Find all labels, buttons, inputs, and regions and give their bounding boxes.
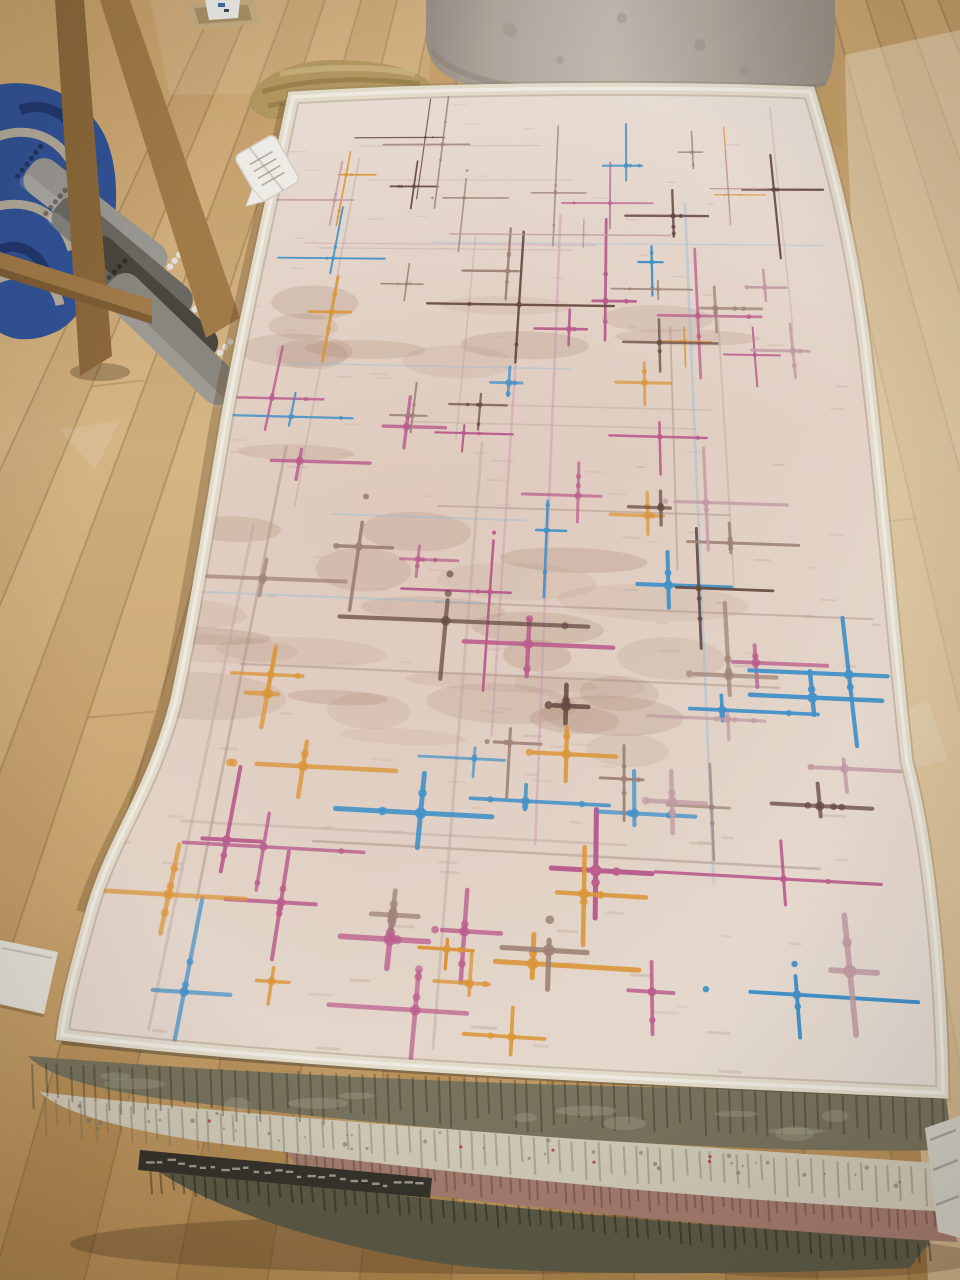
vignette-overlay bbox=[0, 0, 960, 1280]
scene-canvas bbox=[0, 0, 960, 1280]
rug-store-photo bbox=[0, 0, 960, 1280]
